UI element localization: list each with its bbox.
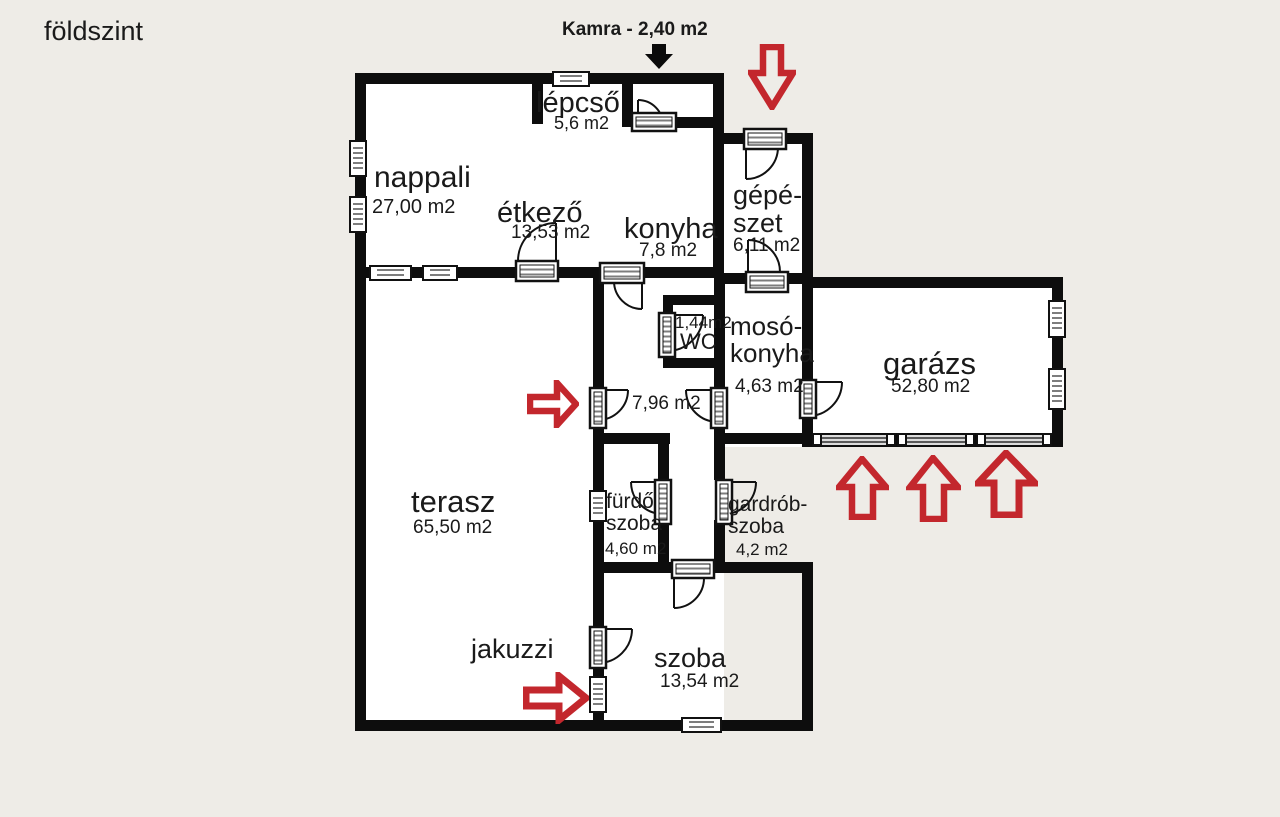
window-icon [589, 676, 607, 713]
area-label-nappali: 27,00 m2 [372, 197, 455, 218]
window-icon [349, 140, 367, 177]
room-label-mosokonyha: mosó-konyha [730, 313, 814, 367]
wall [1052, 277, 1063, 300]
door-icon [596, 259, 650, 315]
wall [593, 562, 672, 573]
window-icon [1048, 368, 1066, 410]
area-label-furdoszoba: 4,60 m2 [605, 540, 666, 558]
window-icon [369, 265, 412, 281]
garage-door-cap [812, 433, 822, 446]
red-right-arrow-icon [523, 672, 589, 724]
wall [713, 73, 724, 278]
room-label-mosokonyha-line1: mosó- [730, 311, 802, 341]
wall [808, 277, 1063, 288]
page-title: földszint [44, 17, 143, 45]
door-icon [740, 125, 790, 185]
room-label-gardrobszoba-line1: gardrób- [728, 493, 807, 516]
area-label-mosokonyha: 4,63 m2 [735, 377, 804, 397]
wall [714, 562, 813, 573]
garage-door-cap [965, 433, 975, 446]
door-icon [586, 384, 634, 436]
garage-door-cap [886, 433, 896, 446]
black-down-arrow-icon [644, 42, 674, 71]
room-label-gepeszet: gépé-szet [733, 181, 802, 237]
room-label-gepeszet-line1: gépé- [733, 180, 802, 210]
room-label-nappali: nappali [374, 162, 471, 193]
area-label-szoba: 13,54 m2 [660, 672, 739, 692]
window-icon [681, 717, 722, 733]
kamra-note-label: Kamra - 2,40 m2 [562, 20, 708, 40]
area-label-kozlekedo: 7,96 m2 [632, 394, 701, 414]
window-icon [422, 265, 458, 281]
area-label-terasz: 65,50 m2 [413, 518, 492, 538]
wall [593, 522, 604, 627]
wall [593, 713, 604, 720]
room-label-furdoszoba: fürdőszoba [606, 491, 662, 535]
wall [1052, 338, 1063, 368]
area-label-garazs: 52,80 m2 [891, 377, 970, 397]
door-icon [586, 623, 638, 679]
room-label-wc: WC [680, 331, 717, 354]
area-label-gardrobszoba: 4,2 m2 [736, 541, 788, 559]
room-label-jakuzzi: jakuzzi [471, 635, 554, 663]
wall [355, 73, 724, 84]
garage-door-icon [976, 434, 1044, 446]
window-icon [1048, 300, 1066, 338]
wall [802, 562, 813, 731]
room-label-szoba: szoba [654, 644, 726, 672]
window-icon [552, 71, 590, 87]
area-label-etkezo: 13,53 m2 [511, 223, 590, 243]
garage-door-cap [976, 433, 986, 446]
area-label-konyha: 7,8 m2 [639, 241, 697, 261]
garage-door-cap [897, 433, 907, 446]
red-up-arrow-icon [836, 456, 889, 520]
area-label-lepcso: 5,6 m2 [554, 114, 609, 133]
garage-door-icon [820, 434, 888, 446]
red-down-arrow-icon [748, 44, 796, 110]
area-label-gepeszet: 6,11 m2 [733, 236, 800, 256]
room-label-furdoszoba-line2: szoba [606, 512, 662, 535]
red-right-arrow-icon [527, 380, 579, 428]
room-label-gardrobszoba: gardrób-szoba [728, 494, 807, 538]
window-icon [589, 490, 607, 522]
floor-plan: földszint Kamra - 2,40 m2 lépcső 5,6 m2 … [0, 0, 1280, 817]
red-up-arrow-icon [975, 450, 1038, 518]
garage-door-cap [1042, 433, 1052, 446]
wall [658, 433, 669, 480]
room-label-terasz: terasz [411, 486, 495, 518]
room-label-furdoszoba-line1: fürdő [606, 490, 654, 513]
room-label-gardrobszoba-line2: szoba [728, 515, 784, 538]
door-icon [668, 556, 720, 612]
door-icon [796, 376, 852, 432]
room-label-mosokonyha-line2: konyha [730, 338, 814, 368]
red-up-arrow-icon [906, 455, 961, 522]
window-icon [349, 196, 367, 233]
door-icon [628, 88, 684, 134]
garage-door-icon [899, 434, 967, 446]
room-label-gepeszet-line2: szet [733, 208, 783, 238]
